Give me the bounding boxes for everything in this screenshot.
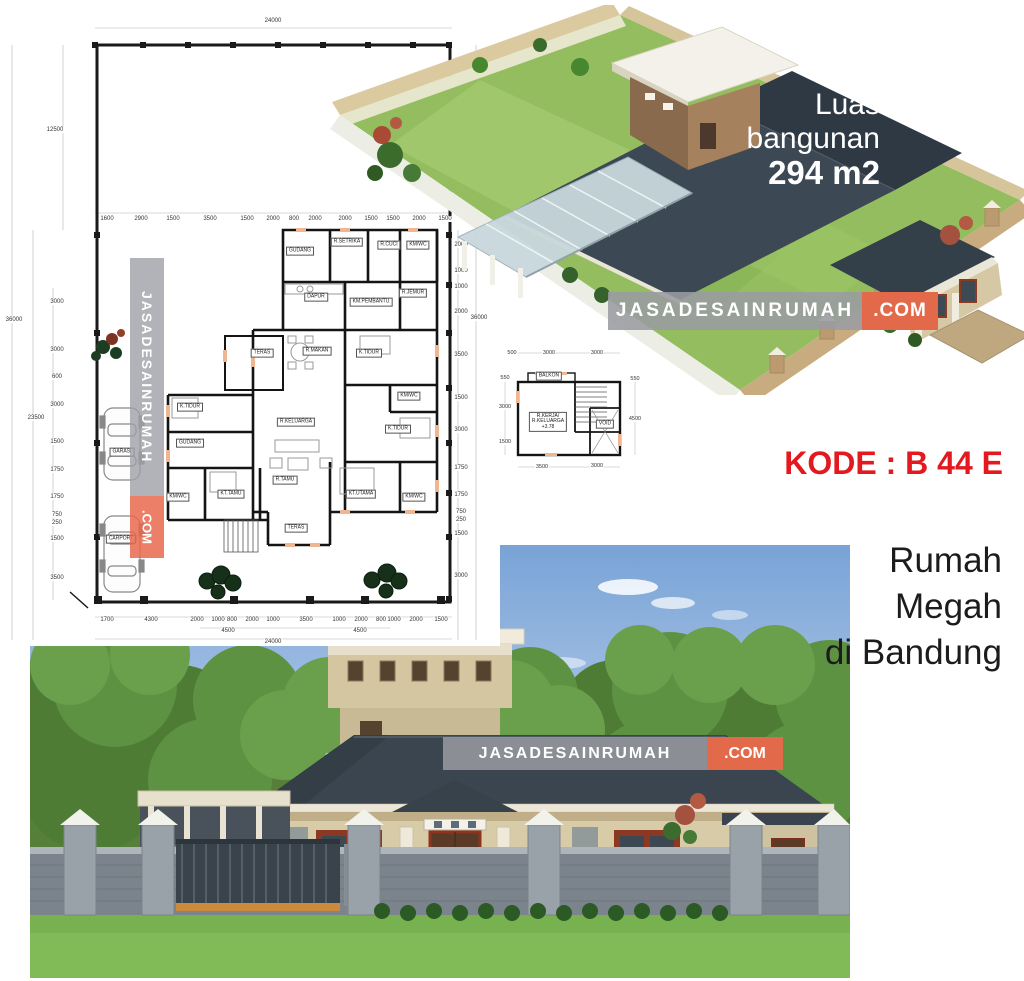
watermark-brand: JASADESAINRUMAH [130, 258, 164, 496]
upper-stairs [575, 387, 607, 422]
walls [168, 230, 437, 545]
ground-floor-plan: 2400016002900150035001500200080020002000… [0, 0, 500, 646]
plan-drawing [0, 0, 500, 646]
gate [176, 839, 364, 911]
watermark-tld: .COM [130, 496, 164, 558]
dimension-lines [12, 28, 476, 640]
page-title: Rumah Megah di Bandung [825, 538, 1002, 676]
watermark-brand: JASADESAINRUMAH [608, 292, 862, 330]
gate-symbol [70, 592, 88, 608]
watermark-banner-aerial: JASADESAINRUMAH .COM [608, 292, 938, 330]
stairs [224, 520, 258, 552]
window-markers [166, 228, 439, 547]
upper-floor-plan: 5003000300055030001500550450035003000 BA… [495, 336, 665, 486]
title-line1: Rumah [825, 538, 1002, 584]
title-line2: Megah [825, 584, 1002, 630]
area-value: 294 m2 [747, 156, 880, 190]
area-line2: bangunan [747, 122, 880, 156]
vertical-watermark: JASADESAINRUMAH .COM [130, 258, 164, 558]
design-sheet: 2400016002900150035001500200080020002000… [0, 0, 1024, 981]
wall-pillars [768, 200, 1001, 373]
upper-walls [518, 382, 620, 455]
building-area-overlay: Luas bangunan 294 m2 [747, 88, 880, 190]
upper-plan-drawing [495, 336, 665, 486]
lawn-front [30, 933, 850, 978]
watermark-tld: .COM [707, 737, 783, 770]
upper-window-markers [516, 372, 621, 456]
watermark-brand: JASADESAINRUMAH [443, 737, 707, 770]
watermark-banner-elevation: JASADESAINRUMAH .COM [443, 737, 783, 770]
design-code: KODE : B 44 E [784, 445, 1003, 482]
path [930, 310, 1024, 363]
title-line3: di Bandung [825, 630, 1002, 676]
area-line1: Luas [747, 88, 880, 122]
watermark-tld: .COM [862, 292, 938, 330]
